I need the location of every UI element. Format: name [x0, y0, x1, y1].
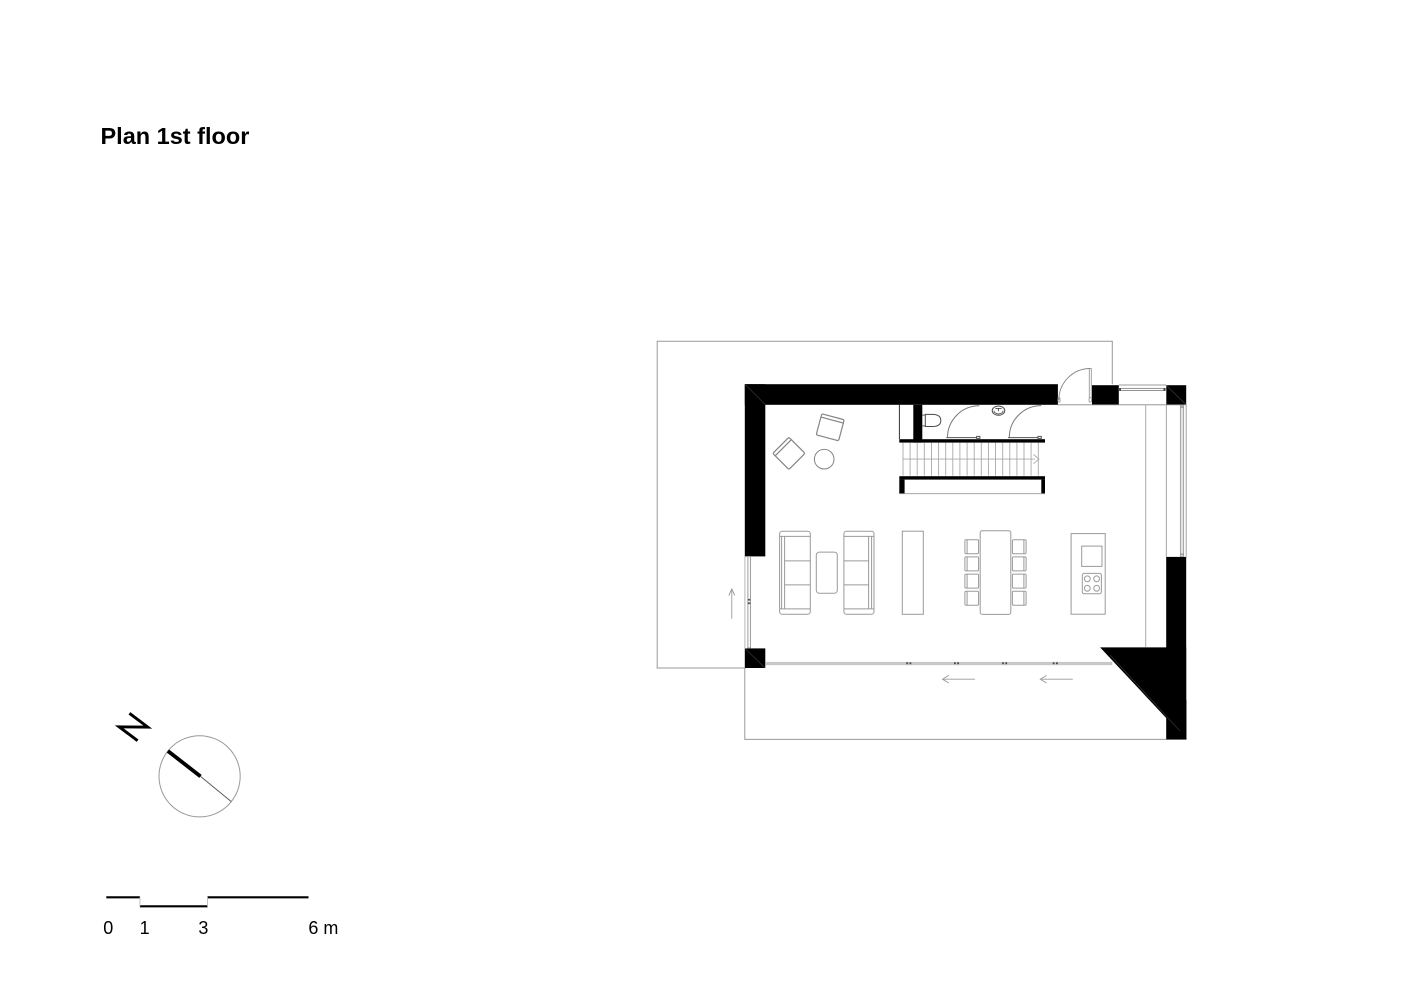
svg-text:6 m: 6 m [308, 918, 338, 938]
svg-text:3: 3 [198, 918, 208, 938]
svg-text:Plan 1st floor: Plan 1st floor [101, 123, 250, 149]
svg-text:0: 0 [103, 918, 113, 938]
svg-text:1: 1 [140, 918, 150, 938]
